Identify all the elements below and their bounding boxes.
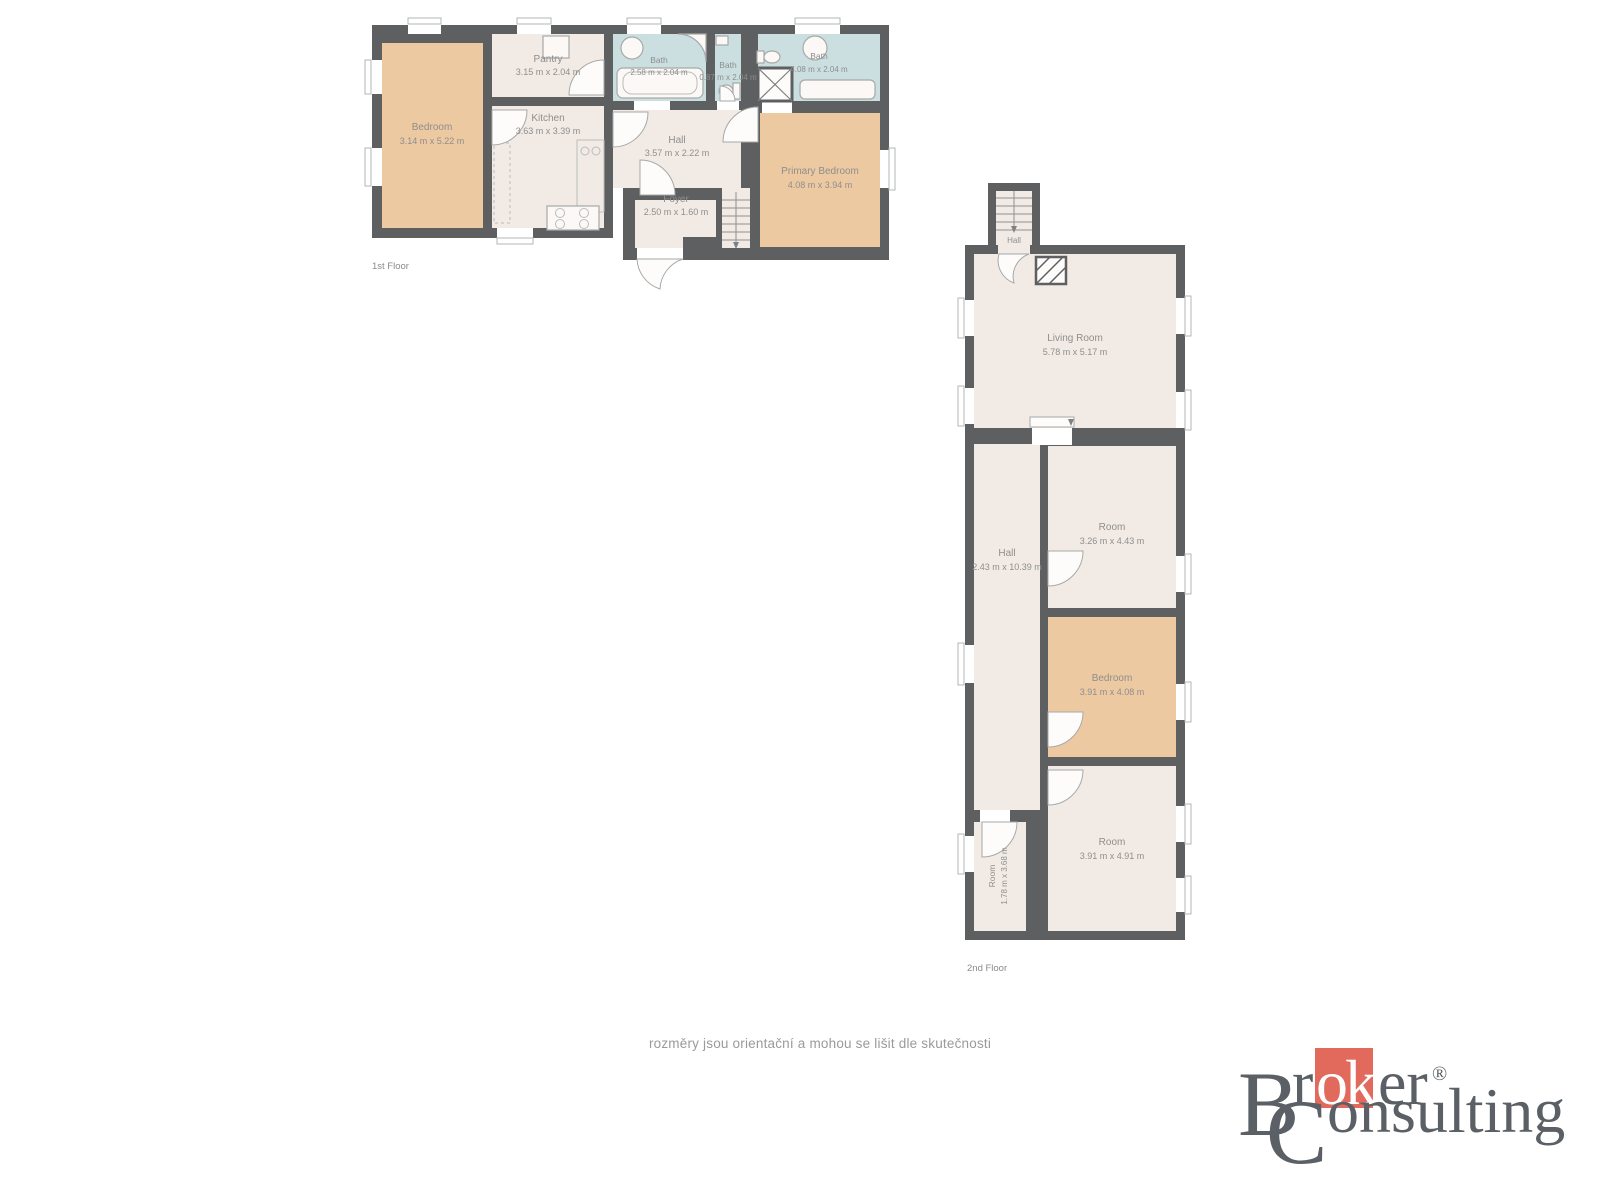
room-dims: 4.08 m x 2.04 m	[790, 65, 848, 74]
window	[1176, 878, 1185, 912]
door-opening-room3	[980, 810, 1010, 822]
room-dims: 3.63 m x 3.39 m	[516, 126, 581, 136]
window	[408, 25, 441, 34]
window-tick	[517, 18, 551, 24]
door-opening-living-hall	[1032, 428, 1072, 445]
window-tick	[958, 386, 964, 426]
window	[880, 150, 889, 188]
room-dims: 4.08 m x 3.94 m	[788, 180, 853, 190]
floorplan-drawing: Bedroom 3.14 m x 5.22 m Pantry 3.15 m x …	[0, 0, 1600, 1200]
logo-letter-c: C	[1266, 1086, 1327, 1178]
room-dims: 2.43 m x 10.39 m	[972, 562, 1042, 572]
window-tick	[1185, 296, 1191, 336]
window-tick	[1185, 876, 1191, 914]
floor2-plan: Hall m x 0.	[958, 183, 1191, 974]
room-label: Bath	[719, 60, 737, 70]
window-tick	[958, 298, 964, 338]
window-tick	[1185, 682, 1191, 722]
window-tick	[958, 643, 964, 685]
floorplan-page: Bedroom 3.14 m x 5.22 m Pantry 3.15 m x …	[0, 0, 1600, 1200]
room-dims: 3.26 m x 4.43 m	[1080, 536, 1145, 546]
logo-text-onsulting: onsulting	[1327, 1079, 1565, 1143]
threshold-living-hall	[1030, 417, 1074, 427]
window-tick	[1185, 390, 1191, 430]
room-label: Hall	[668, 135, 685, 146]
window	[1176, 556, 1185, 592]
toilet-tank-bath3	[757, 51, 764, 63]
room-dims: 3.91 m x 4.91 m	[1080, 851, 1145, 861]
room-label: Kitchen	[531, 113, 564, 124]
window	[965, 645, 974, 683]
window	[1176, 684, 1185, 720]
room-label: Bedroom	[412, 122, 453, 133]
window	[372, 148, 382, 186]
window	[965, 836, 974, 872]
door-opening-stair-hall	[998, 245, 1030, 254]
door-opening-bath1	[634, 101, 670, 110]
room-label: Primary Bedroom	[781, 166, 859, 177]
window-tick	[627, 18, 661, 24]
chimney	[1036, 257, 1066, 284]
window	[965, 300, 974, 336]
floor1-plan: Bedroom 3.14 m x 5.22 m Pantry 3.15 m x …	[365, 18, 895, 289]
window-tick	[889, 148, 895, 190]
room-label: Foyer	[663, 194, 689, 205]
room-dims: 0.87 m x 2.04 m	[699, 73, 757, 82]
shower-bath3	[758, 68, 792, 101]
room-label: Bath	[810, 51, 828, 61]
window-tick	[497, 238, 533, 244]
window-tick	[365, 148, 371, 186]
window-tick	[795, 18, 840, 24]
room-dims: 3.91 m x 4.08 m	[1080, 687, 1145, 697]
window-tick	[958, 834, 964, 874]
small-sink-bath2	[716, 36, 728, 45]
window-tick	[1185, 554, 1191, 594]
room-label: Room	[1099, 837, 1126, 848]
window-tick	[1185, 804, 1191, 844]
sink-bath1	[621, 37, 643, 59]
room-dims: 2.50 m x 1.60 m	[644, 207, 709, 217]
room-label: Bath	[650, 55, 668, 65]
room-label: Room	[987, 865, 997, 888]
entry-door-opening	[637, 248, 683, 260]
room-dims: 3.15 m x 2.04 m	[516, 67, 581, 77]
room-dims: 2.58 m x 2.04 m	[630, 68, 688, 77]
door-opening-bath3	[762, 101, 792, 113]
window	[517, 25, 551, 34]
room-label: Living Room	[1047, 333, 1103, 344]
room-foyer	[635, 200, 716, 237]
window	[627, 25, 661, 34]
room-label: Pantry	[534, 54, 563, 65]
window-tick	[408, 18, 441, 24]
room-label: Room	[1099, 522, 1126, 533]
window	[1176, 298, 1185, 334]
window	[965, 388, 974, 424]
room-label: Hall	[1007, 236, 1021, 245]
room-hall-2f	[974, 444, 1040, 810]
floor1-label: 1st Floor	[372, 261, 409, 272]
window-tick	[365, 60, 371, 94]
room-dims: 3.14 m x 5.22 m	[400, 136, 465, 146]
window	[372, 60, 382, 94]
window	[1176, 392, 1185, 428]
floor2-label: 2nd Floor	[967, 963, 1007, 974]
window	[1176, 806, 1185, 842]
foyer-floor-extension	[635, 237, 683, 248]
entry-door-arc	[637, 259, 683, 289]
room-dims: 5.78 m x 5.17 m	[1043, 347, 1108, 357]
room-label: Bedroom	[1092, 673, 1133, 684]
window	[497, 228, 533, 238]
room-dims: 1.78 m x 3.68 m	[1000, 847, 1009, 905]
toilet-bath3	[764, 51, 780, 63]
door-opening-bath2	[717, 101, 739, 110]
room-dims: 3.57 m x 2.22 m	[645, 148, 710, 158]
window	[795, 25, 840, 34]
disclaimer-text: rozměry jsou orientační a mohou se lišit…	[520, 1036, 1120, 1051]
bathtub-bath3	[800, 80, 875, 99]
stove	[547, 206, 599, 230]
room-label: Hall	[998, 548, 1015, 559]
